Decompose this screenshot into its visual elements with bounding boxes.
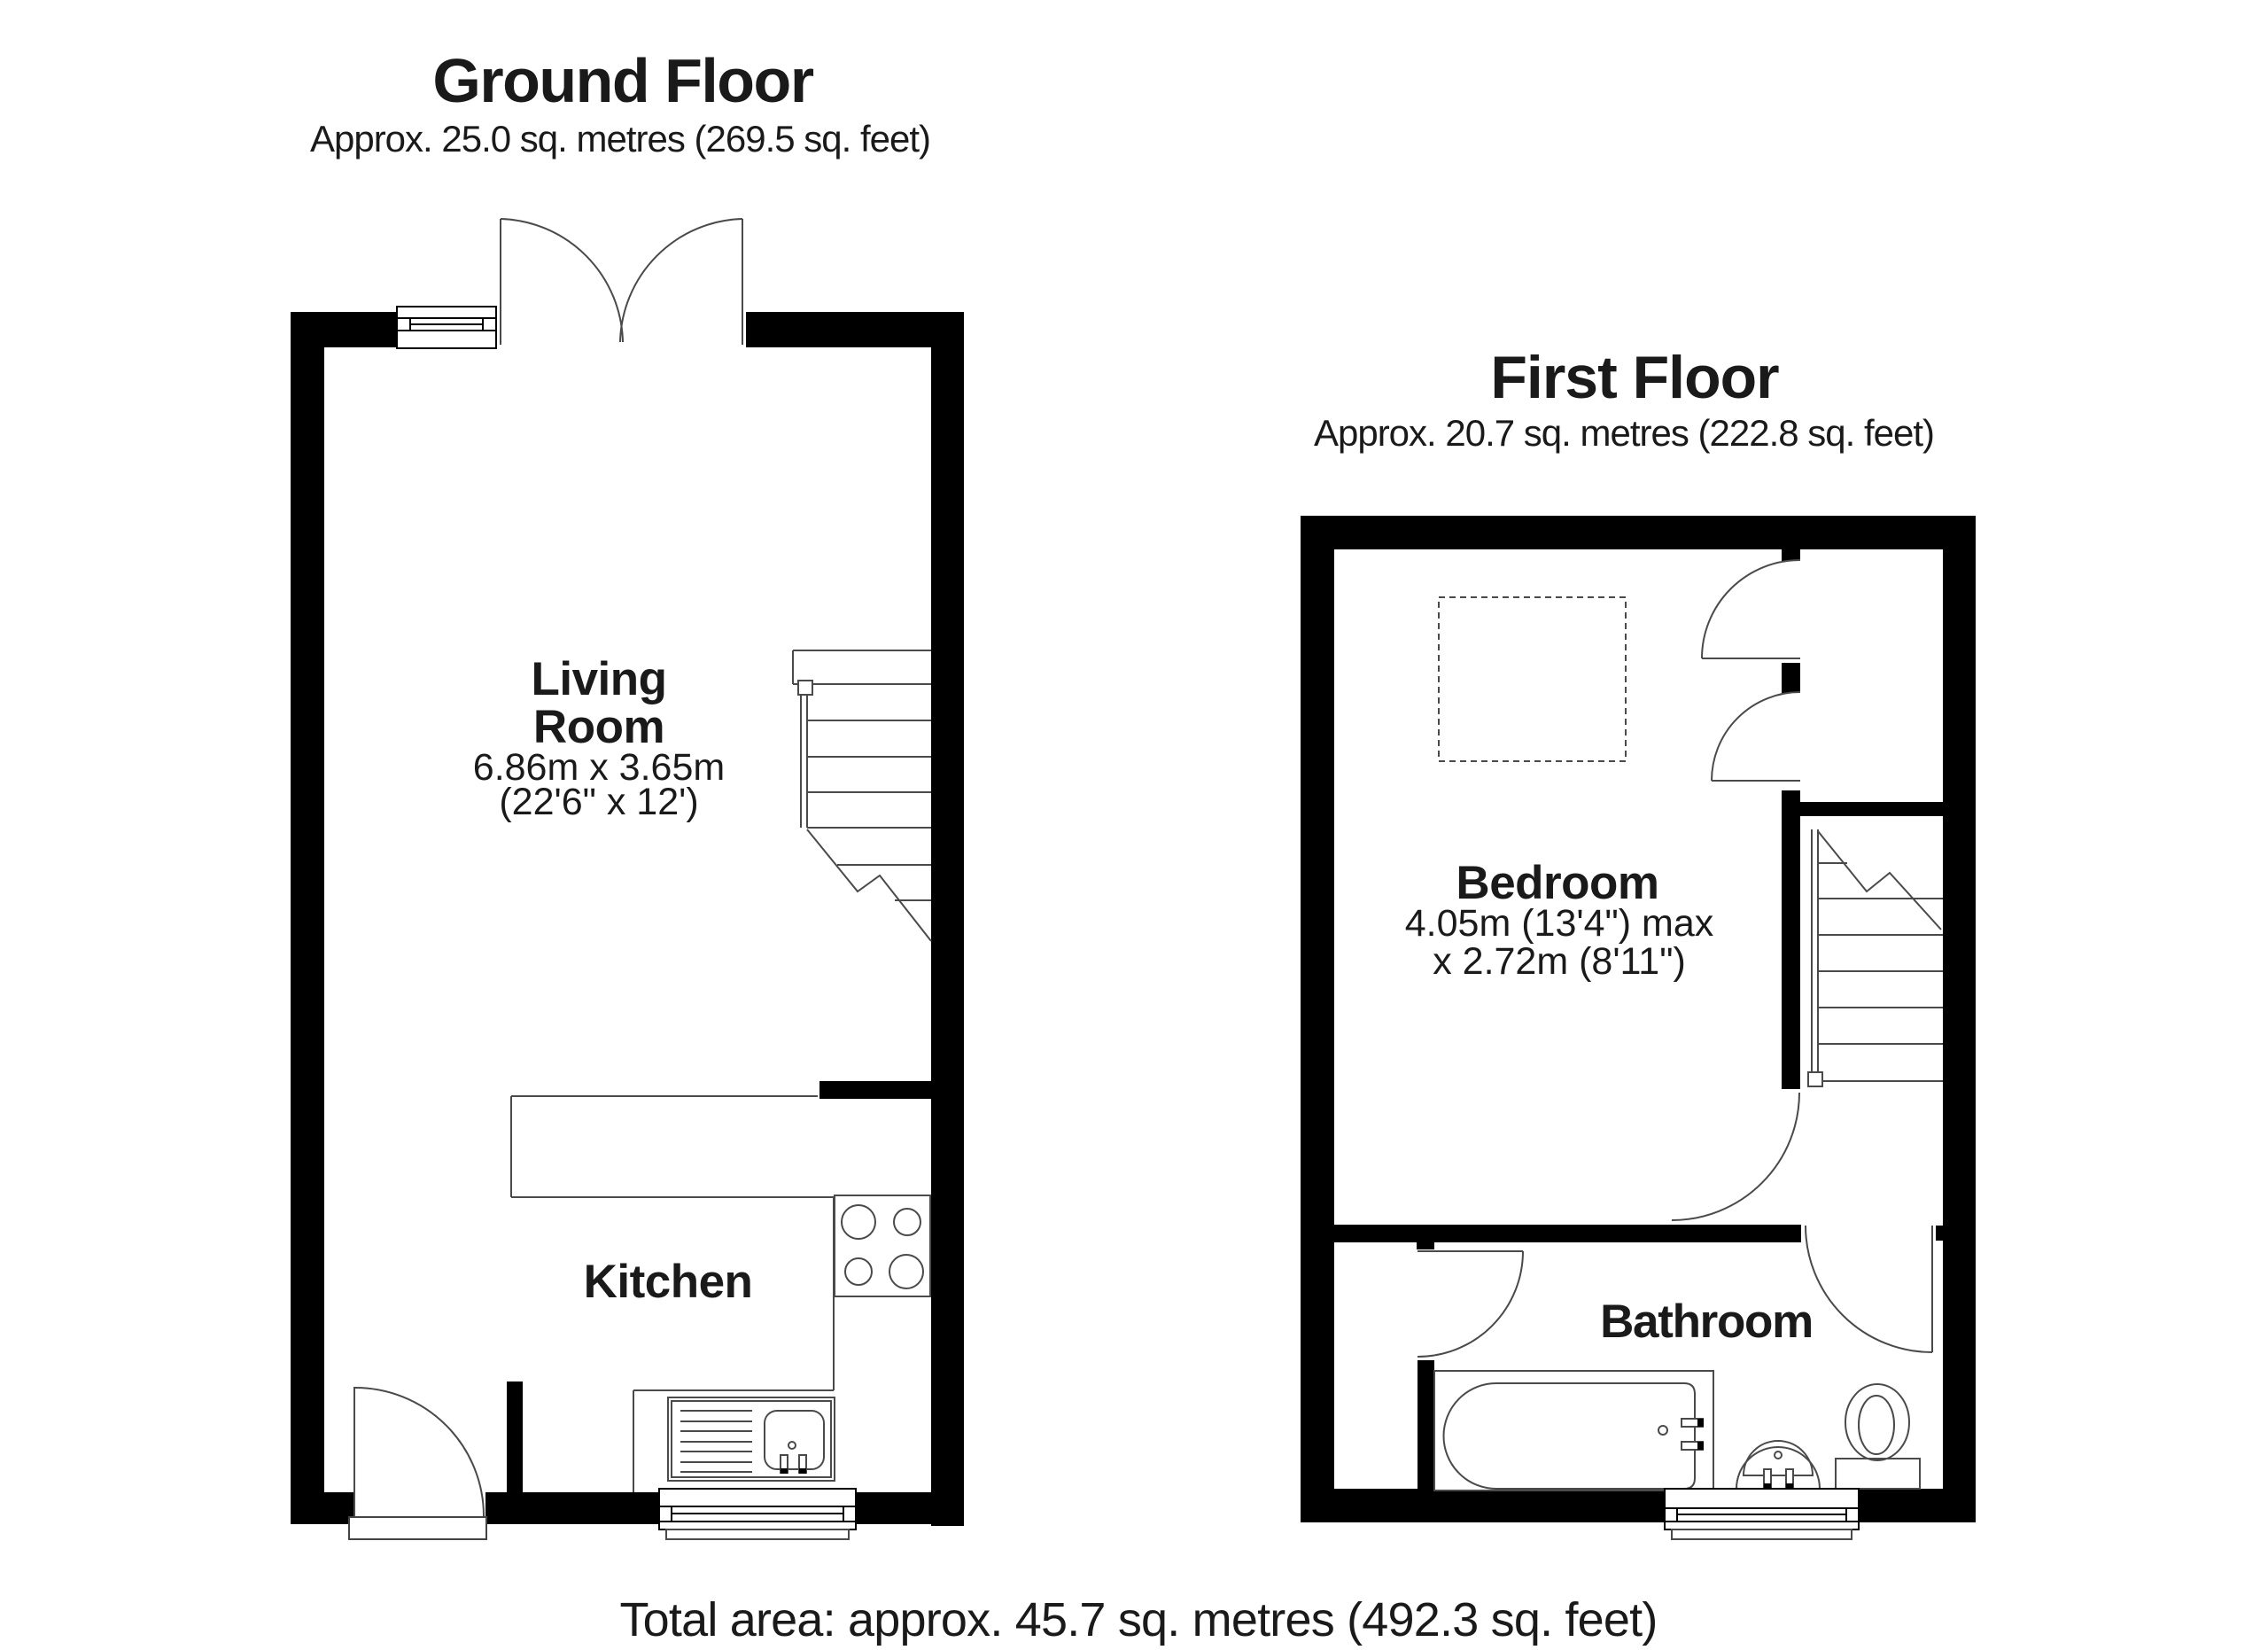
svg-text:Ground Floor: Ground Floor (432, 46, 813, 115)
svg-text:x 2.72m (8'11"): x 2.72m (8'11") (1433, 940, 1686, 983)
svg-text:Bathroom: Bathroom (1600, 1296, 1813, 1348)
svg-text:(22'6" x 12'): (22'6" x 12') (499, 781, 698, 823)
svg-text:Approx. 25.0 sq. metres (269.5: Approx. 25.0 sq. metres (269.5 sq. feet) (310, 118, 930, 160)
svg-text:Total area: approx. 45.7 sq. m: Total area: approx. 45.7 sq. metres (492… (619, 1593, 1657, 1646)
svg-text:Living: Living (531, 653, 666, 705)
svg-text:Approx. 20.7 sq. metres (222.8: Approx. 20.7 sq. metres (222.8 sq. feet) (1314, 412, 1934, 454)
svg-text:Kitchen: Kitchen (584, 1256, 753, 1308)
svg-text:4.05m (13'4") max: 4.05m (13'4") max (1405, 902, 1714, 945)
svg-text:First Floor: First Floor (1490, 344, 1779, 411)
